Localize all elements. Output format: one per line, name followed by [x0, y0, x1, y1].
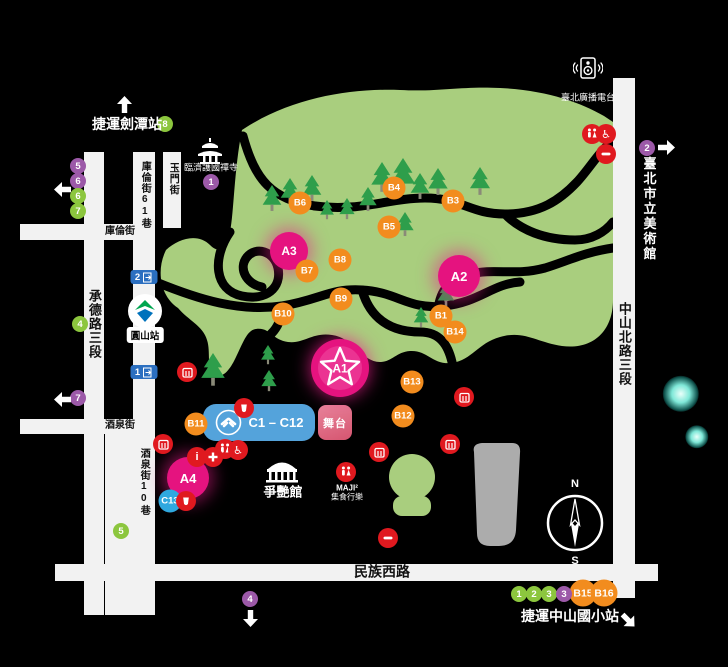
restroom-icon [336, 462, 356, 482]
marker-B7[interactable]: B7 [296, 260, 319, 283]
marker-B16[interactable]: B16 [591, 580, 618, 607]
marker-B8[interactable]: B8 [329, 249, 352, 272]
marker-A2[interactable]: A2 [438, 255, 480, 297]
radio-station-label: 臺北廣播電台 [561, 91, 615, 104]
marker-B11[interactable]: B11 [185, 413, 208, 436]
firstaid-icon [203, 447, 223, 467]
yuanshan-station-label: 圓山站 [127, 327, 164, 343]
speaker-icon [573, 56, 603, 86]
mrt-zhongshan-es-label: 捷運中山國小站 [521, 606, 619, 626]
street-name: 玉門街 [167, 163, 178, 196]
pine-tree-icon [200, 353, 227, 387]
direction-arrow-left [54, 392, 71, 407]
dome-label: 爭艷館 [263, 482, 302, 501]
pine-tree-icon [319, 200, 335, 220]
numbered-badge-4[interactable]: 4 [242, 591, 258, 607]
pine-tree-icon [413, 307, 430, 328]
marker-B6[interactable]: B6 [289, 192, 312, 215]
stall-icon [177, 362, 197, 382]
maji-label-2: 集食行樂 [331, 492, 363, 503]
pine-tree-icon [260, 370, 278, 392]
c-area-block[interactable]: C1 – C12 [203, 404, 315, 441]
marker-B9[interactable]: B9 [330, 288, 353, 311]
marker-B13[interactable]: B13 [401, 371, 424, 394]
lawn-blob [389, 454, 435, 516]
mrt-jiantan-label: 捷運劍潭站 [92, 114, 162, 134]
numbered-badge-1[interactable]: 1 [203, 174, 219, 190]
numbered-badge-1[interactable]: 1 [511, 586, 527, 602]
street-name: 承德路三段 [87, 289, 101, 359]
numbered-badge-2[interactable]: 2 [639, 140, 655, 156]
direction-arrow-down [243, 610, 258, 627]
stall-icon [153, 434, 173, 454]
c-block-label: C1 – C12 [249, 415, 304, 430]
numbered-badge-5[interactable]: 5 [70, 158, 86, 174]
direction-arrow-right [658, 140, 675, 155]
road [84, 152, 104, 615]
minus-icon [378, 528, 398, 548]
marker-B14[interactable]: B14 [444, 321, 467, 344]
street-name: 庫倫街61巷 [139, 161, 150, 229]
road [105, 429, 135, 615]
marker-B10[interactable]: B10 [272, 303, 295, 326]
museum-label: 臺北市立美術館 [640, 157, 659, 262]
numbered-badge-5[interactable]: 5 [113, 523, 129, 539]
station-exit-2[interactable]: 2 [131, 270, 158, 284]
numbered-badge-3[interactable]: 3 [541, 586, 557, 602]
direction-arrow-up [117, 96, 132, 113]
stage-block[interactable]: 舞台 [318, 405, 352, 440]
station-exit-1[interactable]: 1 [131, 365, 158, 379]
direction-arrow-left [54, 182, 71, 197]
street-name: 庫倫街 [105, 227, 135, 238]
plaza-gray [474, 443, 520, 546]
event-park-map: 承德路三段庫倫街61巷酒泉街10巷玉門街中山北路三段庫倫街酒泉街民族西路 [0, 0, 728, 667]
stall-icon [369, 442, 389, 462]
street-name: 酒泉街10巷 [138, 448, 149, 516]
marker-B12[interactable]: B12 [392, 405, 415, 428]
stall-icon [454, 387, 474, 407]
svg-text:A1: A1 [332, 362, 348, 376]
street-name: 中山北路三段 [617, 302, 631, 386]
numbered-badge-2[interactable]: 2 [526, 586, 542, 602]
street-name: 民族西路 [354, 565, 410, 580]
pine-tree-icon [469, 167, 492, 196]
wheelchair-icon: ♿ [596, 124, 616, 144]
drink-icon [176, 491, 196, 511]
numbered-badge-4[interactable]: 4 [72, 316, 88, 332]
pine-tree-icon [260, 345, 276, 365]
dome-building-icon [262, 456, 302, 484]
numbered-badge-3[interactable]: 3 [556, 586, 572, 602]
marker-B4[interactable]: B4 [383, 177, 406, 200]
minus-icon [596, 144, 616, 164]
stall-icon [440, 434, 460, 454]
numbered-badge-6[interactable]: 6 [70, 188, 86, 204]
marker-B3[interactable]: B3 [442, 190, 465, 213]
compass-north: N [571, 478, 579, 490]
numbered-badge-6[interactable]: 6 [70, 173, 86, 189]
marker-A1[interactable]: A1 [304, 332, 376, 404]
street-name: 酒泉街 [105, 421, 135, 432]
drink-icon [234, 398, 254, 418]
numbered-badge-7[interactable]: 7 [70, 203, 86, 219]
compass: N S [540, 475, 610, 567]
temple-label: 臨濟護國禪寺 [184, 161, 238, 174]
marker-B5[interactable]: B5 [378, 216, 401, 239]
wheelchair-icon: ♿ [228, 440, 248, 460]
yuanshan-station-logo[interactable] [127, 293, 163, 329]
numbered-badge-7[interactable]: 7 [70, 390, 86, 406]
compass-south: S [571, 555, 578, 567]
pine-tree-icon [338, 198, 356, 220]
